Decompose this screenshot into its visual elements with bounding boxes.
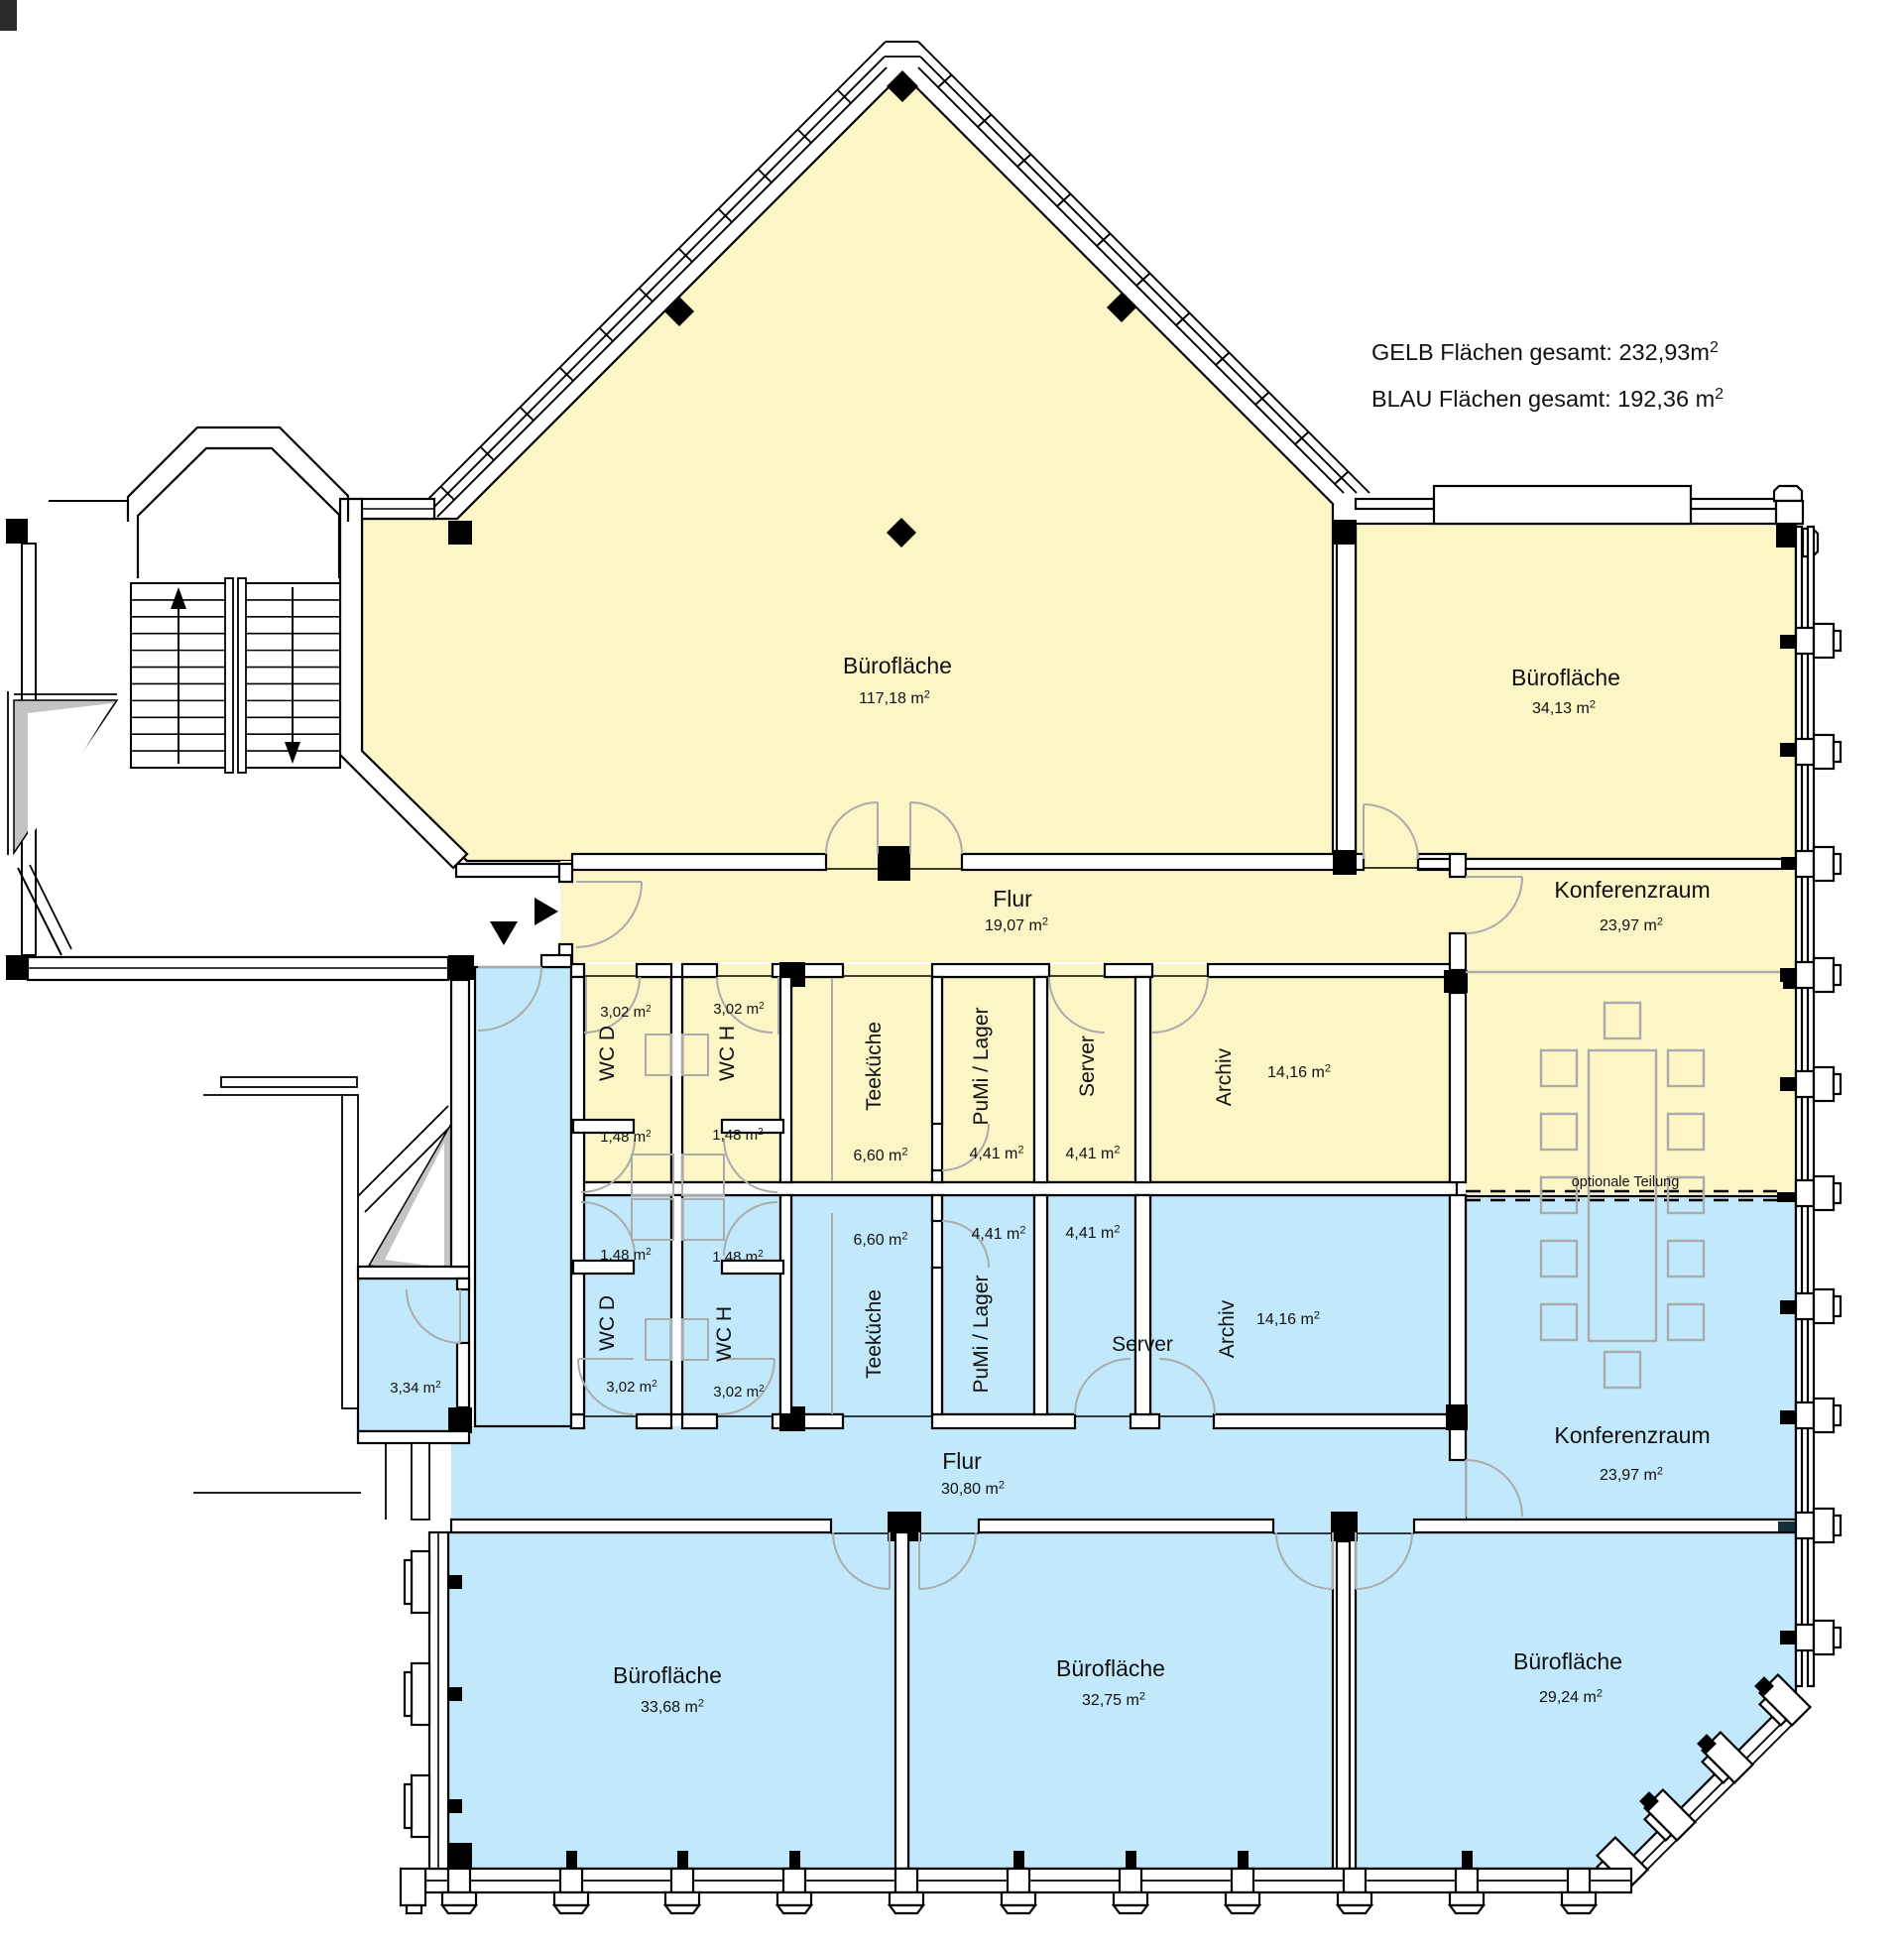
svg-text:Teeküche: Teeküche (863, 1022, 886, 1111)
svg-text:BLAU Flächen gesamt: 192,36 m2: BLAU Flächen gesamt: 192,36 m2 (1371, 386, 1724, 412)
svg-text:Konferenzraum: Konferenzraum (1554, 1422, 1710, 1448)
svg-text:4,41 m2: 4,41 m2 (971, 1224, 1025, 1243)
svg-text:19,07 m2: 19,07 m2 (985, 915, 1048, 934)
svg-text:PuMi / Lager: PuMi / Lager (970, 1007, 993, 1125)
svg-text:Bürofläche: Bürofläche (1511, 665, 1620, 690)
svg-text:6,60 m2: 6,60 m2 (853, 1146, 907, 1164)
svg-text:1,48 m2: 1,48 m2 (600, 1129, 652, 1146)
svg-text:14,16 m2: 14,16 m2 (1267, 1062, 1331, 1081)
svg-text:1,48 m2: 1,48 m2 (600, 1247, 652, 1264)
svg-text:29,24 m2: 29,24 m2 (1539, 1687, 1603, 1706)
svg-text:Bürofläche: Bürofläche (1513, 1648, 1622, 1674)
svg-text:WC D: WC D (596, 1026, 619, 1081)
svg-text:33,68 m2: 33,68 m2 (641, 1697, 704, 1716)
svg-text:4,41 m2: 4,41 m2 (1065, 1223, 1120, 1242)
svg-text:23,97 m2: 23,97 m2 (1600, 1465, 1663, 1484)
svg-text:Bürofläche: Bürofläche (843, 653, 952, 678)
svg-text:Archiv: Archiv (1213, 1047, 1236, 1106)
svg-text:Archiv: Archiv (1216, 1299, 1239, 1358)
svg-text:1,48 m2: 1,48 m2 (712, 1127, 764, 1144)
svg-text:Bürofläche: Bürofläche (1056, 1655, 1165, 1681)
svg-text:WC D: WC D (596, 1295, 619, 1351)
svg-text:3,34 m2: 3,34 m2 (390, 1380, 441, 1397)
svg-text:GELB Flächen gesamt: 232,93m2: GELB Flächen gesamt: 232,93m2 (1371, 339, 1719, 365)
svg-text:Server: Server (1112, 1333, 1173, 1356)
svg-text:6,60 m2: 6,60 m2 (853, 1230, 907, 1249)
svg-text:32,75 m2: 32,75 m2 (1082, 1690, 1145, 1709)
svg-text:1,48 m2: 1,48 m2 (712, 1249, 764, 1266)
svg-text:Server: Server (1076, 1035, 1099, 1097)
svg-text:3,02 m2: 3,02 m2 (606, 1379, 657, 1396)
svg-text:34,13 m2: 34,13 m2 (1532, 698, 1596, 717)
svg-text:Teeküche: Teeküche (863, 1289, 886, 1379)
svg-text:Bürofläche: Bürofläche (613, 1662, 722, 1688)
svg-text:Flur: Flur (942, 1448, 982, 1474)
svg-text:4,41 m2: 4,41 m2 (969, 1144, 1023, 1162)
svg-text:3,02 m2: 3,02 m2 (600, 1004, 652, 1021)
svg-text:Flur: Flur (993, 886, 1032, 912)
svg-text:3,02 m2: 3,02 m2 (713, 1001, 765, 1018)
svg-text:WC H: WC H (716, 1026, 739, 1081)
svg-text:30,80 m2: 30,80 m2 (941, 1479, 1005, 1498)
svg-text:23,97 m2: 23,97 m2 (1600, 915, 1663, 934)
svg-text:14,16 m2: 14,16 m2 (1256, 1309, 1320, 1328)
svg-text:Konferenzraum: Konferenzraum (1554, 877, 1710, 903)
svg-text:4,41 m2: 4,41 m2 (1065, 1144, 1120, 1162)
svg-text:PuMi / Lager: PuMi / Lager (970, 1275, 993, 1393)
svg-text:optionale Teilung: optionale Teilung (1572, 1174, 1680, 1190)
svg-text:117,18 m2: 117,18 m2 (859, 688, 930, 707)
svg-text:3,02 m2: 3,02 m2 (713, 1384, 765, 1400)
svg-text:WC H: WC H (713, 1306, 736, 1362)
